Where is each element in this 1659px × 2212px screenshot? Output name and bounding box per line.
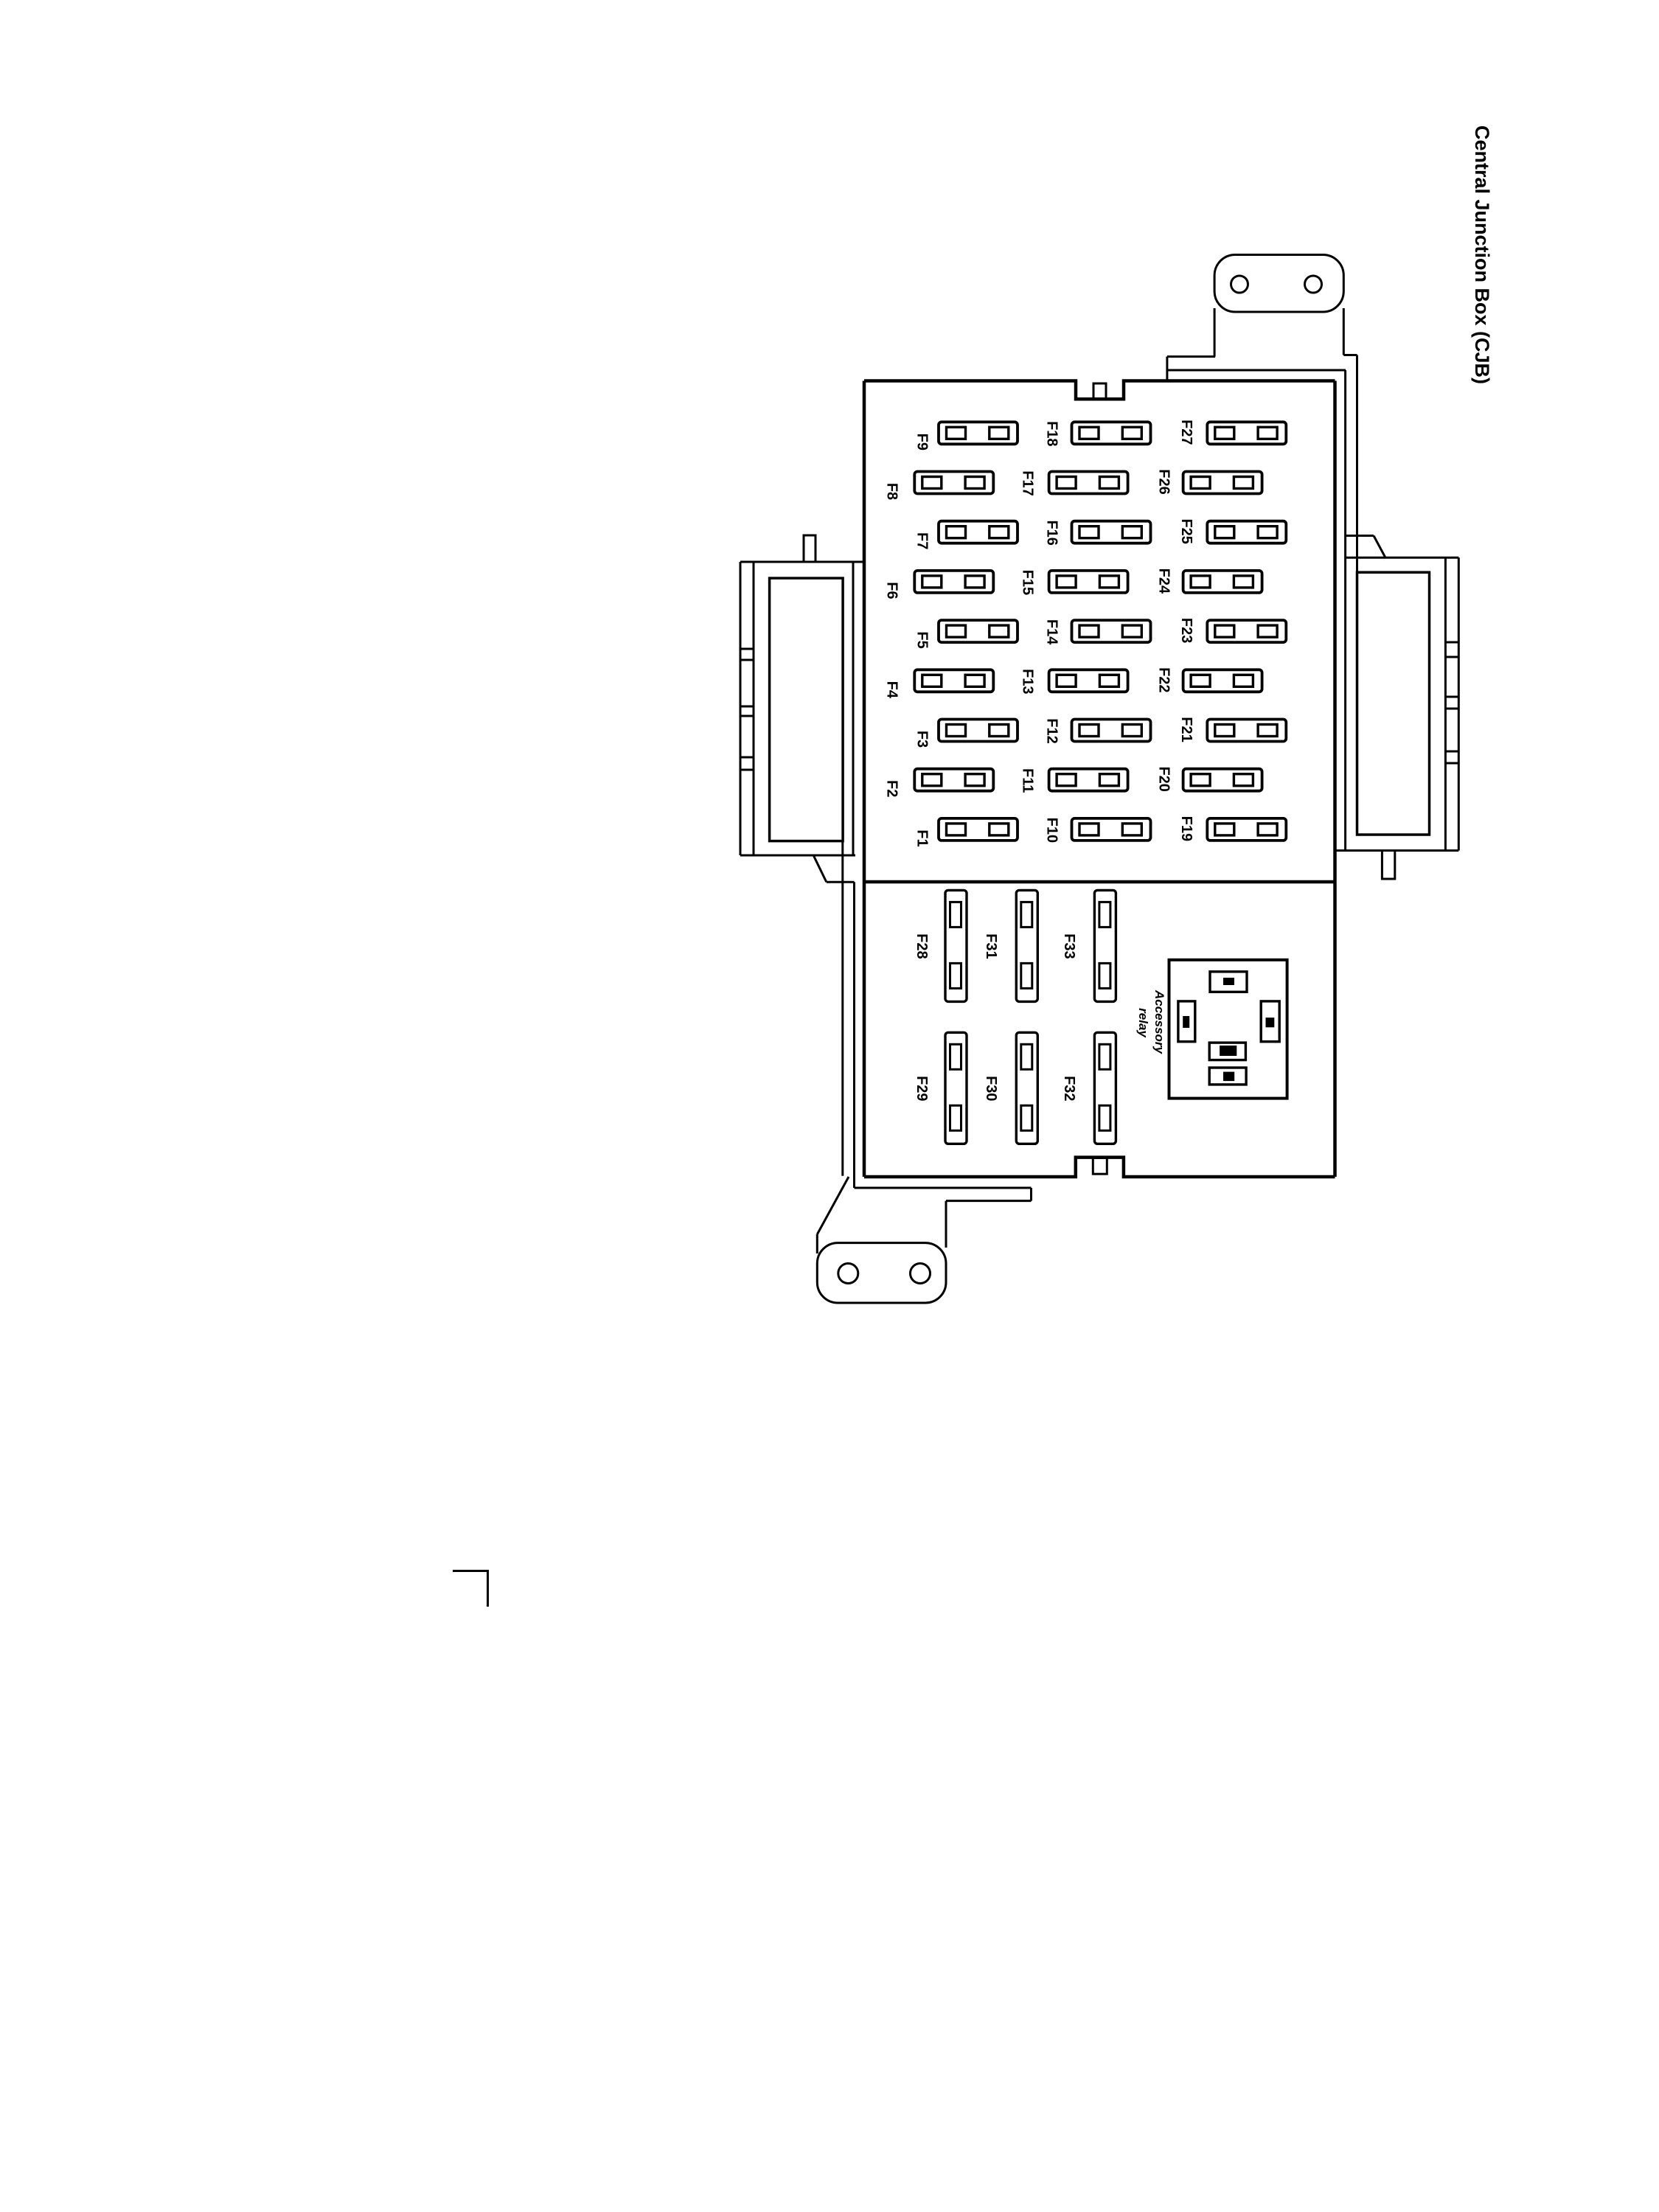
svg-text:F11: F11	[1020, 768, 1036, 793]
svg-text:F22: F22	[1156, 667, 1172, 692]
svg-text:F18: F18	[1044, 421, 1060, 446]
svg-text:F7: F7	[914, 532, 931, 549]
svg-text:F23: F23	[1178, 618, 1194, 643]
svg-text:F29: F29	[914, 1076, 930, 1101]
svg-text:F28: F28	[914, 933, 930, 959]
svg-text:relay: relay	[1136, 1008, 1150, 1038]
svg-text:F13: F13	[1020, 669, 1036, 694]
svg-text:F20: F20	[1156, 766, 1172, 791]
svg-text:F19: F19	[1178, 816, 1194, 841]
svg-text:F2: F2	[884, 780, 900, 797]
svg-text:F16: F16	[1044, 520, 1060, 545]
svg-text:F10: F10	[1044, 818, 1060, 843]
svg-text:Central Junction Box (CJB): Central Junction Box (CJB)	[1471, 125, 1493, 384]
svg-text:F3: F3	[914, 731, 931, 748]
svg-text:F8: F8	[884, 483, 900, 500]
svg-text:F1: F1	[914, 829, 931, 846]
svg-text:F31: F31	[983, 933, 999, 959]
svg-text:F30: F30	[983, 1076, 999, 1101]
svg-text:F14: F14	[1044, 619, 1060, 645]
svg-text:F5: F5	[914, 631, 931, 648]
svg-text:F33: F33	[1061, 933, 1077, 959]
svg-text:F27: F27	[1178, 420, 1194, 445]
svg-text:F15: F15	[1020, 570, 1036, 595]
svg-text:F6: F6	[884, 582, 900, 599]
svg-text:F21: F21	[1178, 717, 1194, 742]
svg-text:F9: F9	[914, 434, 931, 451]
svg-text:F17: F17	[1020, 470, 1036, 495]
svg-text:F4: F4	[884, 681, 900, 699]
svg-text:F12: F12	[1044, 718, 1060, 743]
svg-text:F26: F26	[1156, 469, 1172, 494]
svg-text:F32: F32	[1061, 1076, 1077, 1101]
svg-text:F24: F24	[1156, 568, 1172, 594]
svg-text:F25: F25	[1178, 518, 1194, 543]
svg-text:Accessory: Accessory	[1152, 990, 1166, 1055]
